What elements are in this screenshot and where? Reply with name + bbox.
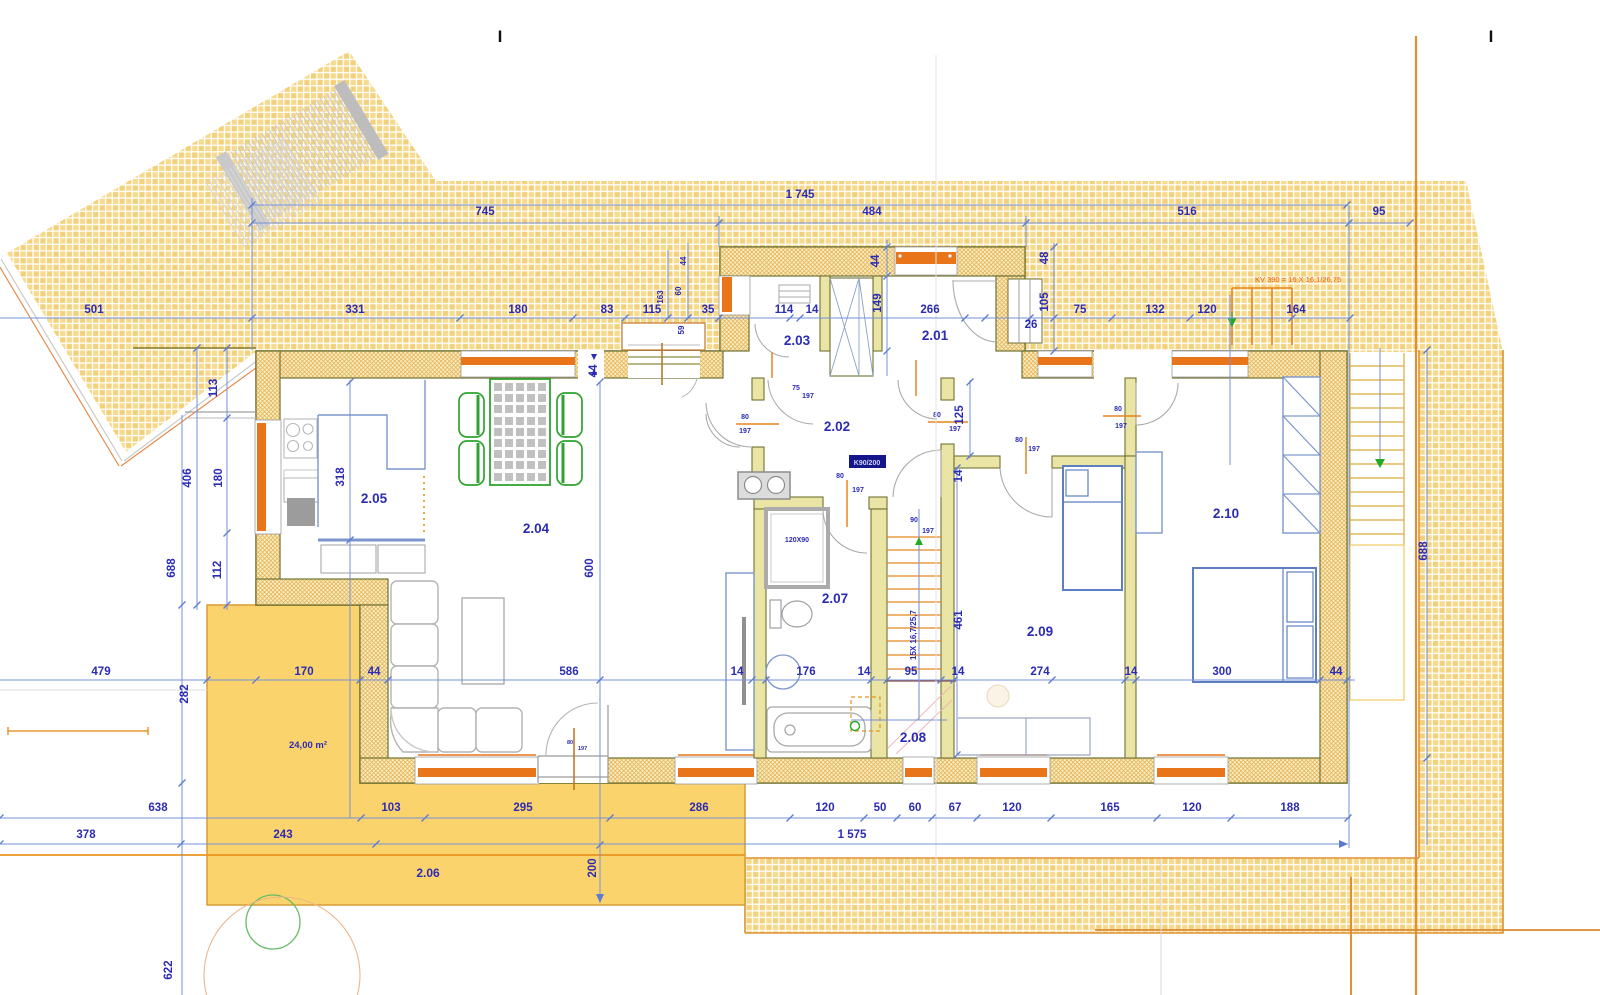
svg-text:120: 120 — [1182, 802, 1201, 814]
svg-text:I: I — [498, 27, 503, 46]
svg-text:638: 638 — [148, 802, 168, 814]
svg-text:120: 120 — [1002, 802, 1021, 814]
svg-text:188: 188 — [1280, 802, 1300, 814]
svg-text:95: 95 — [905, 666, 918, 678]
svg-text:200: 200 — [587, 858, 599, 877]
svg-text:105: 105 — [1039, 292, 1051, 312]
svg-text:26: 26 — [1025, 319, 1038, 331]
svg-text:60: 60 — [674, 286, 683, 295]
svg-text:14: 14 — [952, 666, 965, 678]
svg-text:300: 300 — [1212, 666, 1231, 678]
svg-text:120: 120 — [815, 802, 834, 814]
svg-text:95: 95 — [1373, 206, 1386, 218]
svg-text:197: 197 — [1028, 446, 1040, 453]
svg-text:14: 14 — [858, 666, 871, 678]
svg-text:1 745: 1 745 — [786, 189, 815, 201]
svg-text:44: 44 — [679, 256, 688, 265]
svg-text:44: 44 — [870, 254, 882, 267]
svg-text:115: 115 — [643, 304, 662, 316]
svg-text:24,00 m²: 24,00 m² — [289, 740, 327, 751]
svg-text:180: 180 — [508, 304, 527, 316]
svg-text:170: 170 — [294, 666, 313, 678]
svg-text:48: 48 — [1039, 251, 1051, 264]
svg-text:2.01: 2.01 — [922, 328, 949, 343]
svg-text:80: 80 — [741, 414, 749, 421]
svg-text:59: 59 — [677, 325, 686, 334]
svg-text:60: 60 — [909, 802, 922, 814]
svg-text:103: 103 — [381, 802, 400, 814]
svg-text:461: 461 — [953, 610, 965, 630]
svg-text:50: 50 — [874, 802, 887, 814]
svg-text:2.02: 2.02 — [824, 419, 850, 434]
svg-text:586: 586 — [559, 666, 578, 678]
svg-text:2.03: 2.03 — [784, 333, 811, 348]
svg-text:2.10: 2.10 — [1213, 506, 1239, 521]
svg-text:113: 113 — [208, 379, 220, 398]
svg-text:197: 197 — [922, 528, 934, 535]
svg-text:688: 688 — [166, 558, 178, 578]
svg-text:149: 149 — [872, 293, 884, 312]
svg-text:406: 406 — [182, 468, 194, 487]
svg-text:14: 14 — [953, 469, 965, 482]
svg-text:2.08: 2.08 — [900, 730, 927, 745]
svg-text:745: 745 — [475, 206, 495, 218]
svg-text:2.05: 2.05 — [361, 491, 388, 506]
svg-text:75: 75 — [1074, 304, 1087, 316]
svg-text:479: 479 — [91, 666, 110, 678]
svg-text:132: 132 — [1145, 304, 1164, 316]
svg-text:2.07: 2.07 — [822, 591, 848, 606]
svg-text:165: 165 — [1100, 802, 1120, 814]
svg-text:197: 197 — [802, 393, 814, 400]
svg-text:197: 197 — [949, 426, 961, 433]
svg-text:516: 516 — [1177, 206, 1196, 218]
svg-text:120X90: 120X90 — [785, 537, 809, 544]
svg-text:318: 318 — [335, 467, 347, 487]
svg-text:80: 80 — [1114, 406, 1122, 413]
svg-text:282: 282 — [179, 684, 191, 703]
svg-text:286: 286 — [689, 802, 708, 814]
svg-text:14: 14 — [806, 304, 819, 316]
svg-text:90: 90 — [910, 517, 918, 524]
svg-text:15X 16,7/25,7: 15X 16,7/25,7 — [909, 610, 918, 660]
svg-text:501: 501 — [84, 304, 104, 316]
svg-text:80: 80 — [567, 740, 573, 746]
svg-text:243: 243 — [273, 829, 292, 841]
svg-text:274: 274 — [1030, 666, 1050, 678]
svg-text:180: 180 — [213, 468, 225, 487]
svg-text:80: 80 — [933, 412, 941, 419]
svg-text:120: 120 — [1197, 304, 1216, 316]
svg-text:2.09: 2.09 — [1027, 624, 1053, 639]
svg-text:125: 125 — [954, 405, 966, 425]
svg-text:67: 67 — [949, 802, 962, 814]
svg-text:688: 688 — [1418, 541, 1430, 561]
svg-text:197: 197 — [1115, 423, 1127, 430]
svg-text:164: 164 — [1286, 304, 1306, 316]
svg-text:484: 484 — [862, 206, 882, 218]
svg-text:163: 163 — [656, 290, 665, 304]
svg-text:KV 390 = 16 X 16,1/26,75: KV 390 = 16 X 16,1/26,75 — [1255, 275, 1341, 284]
svg-text:80: 80 — [1015, 437, 1023, 444]
svg-text:197: 197 — [739, 428, 751, 435]
svg-text:75: 75 — [792, 385, 800, 392]
svg-text:35: 35 — [702, 304, 715, 316]
svg-text:197: 197 — [852, 487, 864, 494]
svg-text:1 575: 1 575 — [838, 829, 867, 841]
svg-text:I: I — [1489, 27, 1494, 46]
svg-text:114: 114 — [775, 304, 794, 316]
svg-text:14: 14 — [1125, 666, 1138, 678]
svg-text:197: 197 — [578, 746, 587, 752]
svg-text:112: 112 — [212, 561, 224, 580]
svg-text:2.06: 2.06 — [416, 866, 440, 880]
svg-text:44: 44 — [368, 666, 381, 678]
svg-text:176: 176 — [796, 666, 815, 678]
svg-text:331: 331 — [345, 304, 365, 316]
svg-text:K90/200: K90/200 — [854, 460, 881, 467]
svg-text:44: 44 — [1330, 666, 1343, 678]
svg-text:14: 14 — [731, 666, 744, 678]
svg-text:83: 83 — [601, 304, 614, 316]
svg-text:622: 622 — [163, 960, 175, 979]
svg-text:295: 295 — [513, 802, 533, 814]
svg-text:2.04: 2.04 — [523, 521, 550, 536]
svg-text:378: 378 — [76, 829, 96, 841]
svg-text:600: 600 — [584, 558, 596, 577]
svg-text:80: 80 — [836, 473, 844, 480]
svg-text:266: 266 — [920, 304, 939, 316]
